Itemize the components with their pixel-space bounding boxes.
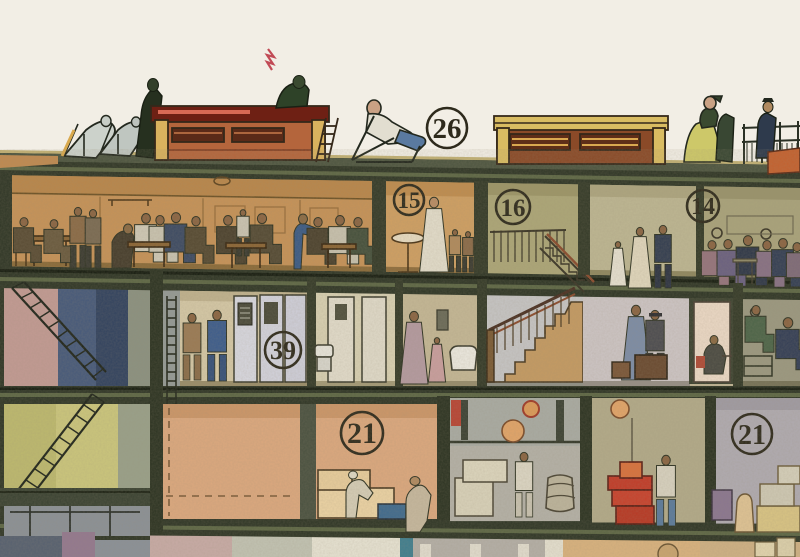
svg-text:26: 26 — [433, 113, 462, 145]
